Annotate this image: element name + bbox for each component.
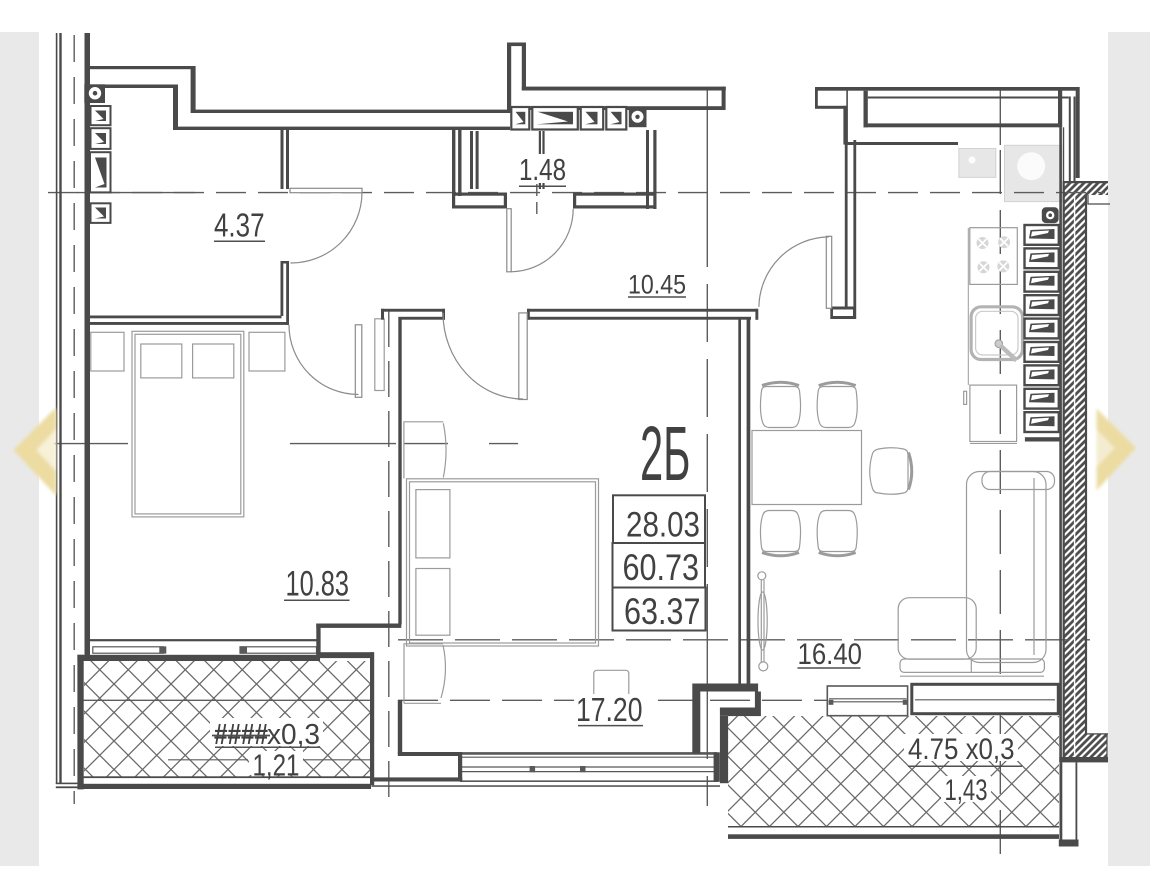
svg-text:10.45: 10.45 (628, 270, 686, 300)
svg-text:28.03: 28.03 (626, 506, 700, 545)
svg-text:1,21: 1,21 (253, 749, 300, 783)
svg-text:1,43: 1,43 (945, 774, 988, 807)
svg-text:10.83: 10.83 (286, 564, 350, 604)
svg-text:4.75 x0,3: 4.75 x0,3 (908, 733, 1015, 766)
svg-text:16.40: 16.40 (798, 638, 863, 671)
svg-text:2Б: 2Б (640, 411, 691, 497)
svg-text:1.48: 1.48 (519, 152, 566, 187)
svg-text:4.37: 4.37 (214, 208, 265, 245)
svg-text:60.73: 60.73 (623, 547, 700, 588)
svg-text:17.20: 17.20 (576, 692, 643, 729)
svg-text:63.37: 63.37 (624, 591, 701, 632)
svg-text:x0,3: x0,3 (267, 719, 320, 751)
